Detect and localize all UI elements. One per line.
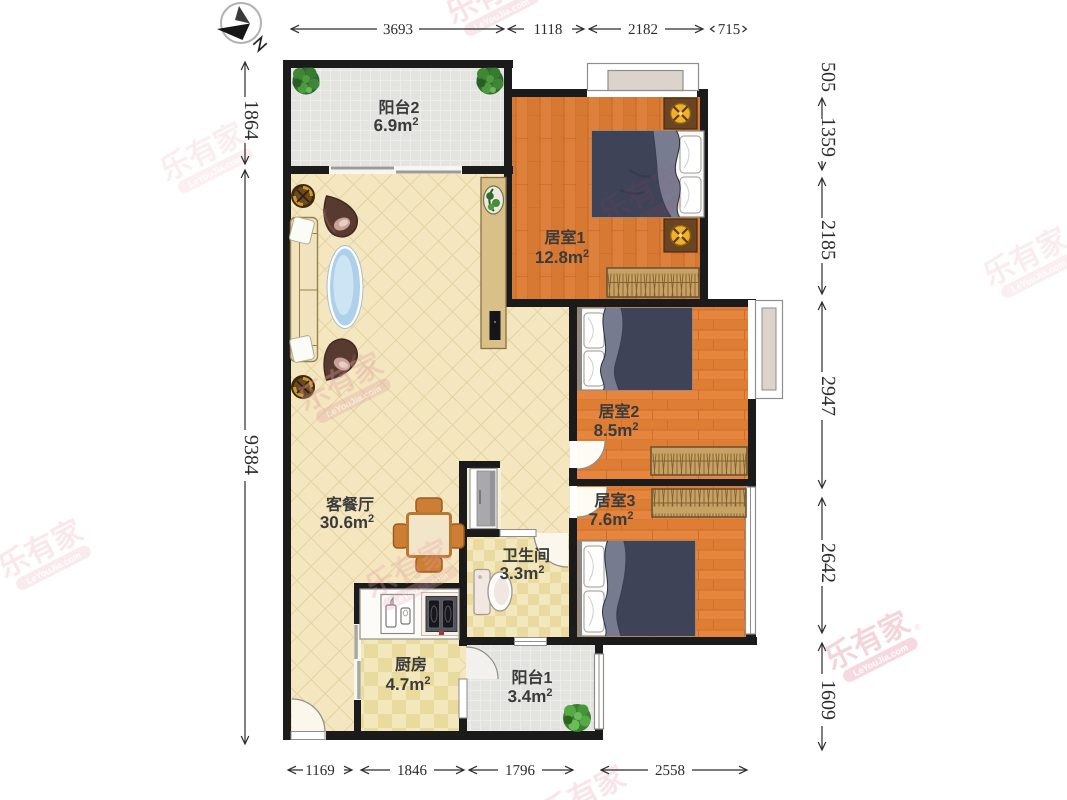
svg-text:4.7m2: 4.7m2 bbox=[386, 675, 431, 694]
svg-text:6.9m2: 6.9m2 bbox=[374, 116, 419, 135]
svg-text:2558: 2558 bbox=[655, 763, 685, 779]
svg-text:1846: 1846 bbox=[397, 763, 428, 779]
svg-text:1118: 1118 bbox=[534, 22, 563, 38]
svg-text:715: 715 bbox=[718, 22, 741, 38]
svg-text:2185: 2185 bbox=[817, 220, 839, 260]
svg-text:居室1: 居室1 bbox=[545, 229, 586, 247]
svg-text:3.4m2: 3.4m2 bbox=[508, 687, 553, 706]
svg-text:阳台2: 阳台2 bbox=[379, 99, 420, 117]
svg-text:2182: 2182 bbox=[628, 22, 658, 38]
svg-text:1169: 1169 bbox=[305, 763, 334, 779]
svg-text:30.6m2: 30.6m2 bbox=[320, 513, 374, 532]
svg-text:卫生间: 卫生间 bbox=[502, 547, 550, 565]
svg-text:1796: 1796 bbox=[505, 763, 536, 779]
svg-text:阳台1: 阳台1 bbox=[512, 669, 553, 687]
svg-text:2947: 2947 bbox=[817, 376, 839, 416]
svg-text:厨房: 厨房 bbox=[395, 656, 427, 674]
svg-text:3.3m2: 3.3m2 bbox=[500, 564, 545, 583]
svg-text:居室2: 居室2 bbox=[599, 403, 640, 421]
svg-text:3693: 3693 bbox=[383, 22, 413, 38]
svg-text:505: 505 bbox=[817, 62, 839, 92]
svg-text:1359: 1359 bbox=[817, 117, 839, 157]
svg-text:客餐厅: 客餐厅 bbox=[325, 496, 374, 514]
svg-text:1609: 1609 bbox=[817, 680, 839, 720]
svg-text:居室3: 居室3 bbox=[595, 492, 636, 510]
svg-text:8.5m2: 8.5m2 bbox=[594, 421, 639, 440]
svg-text:7.6m2: 7.6m2 bbox=[589, 510, 634, 529]
svg-text:2642: 2642 bbox=[817, 543, 839, 583]
svg-text:1864: 1864 bbox=[240, 100, 262, 140]
svg-text:12.8m2: 12.8m2 bbox=[535, 248, 589, 267]
svg-text:9384: 9384 bbox=[240, 435, 262, 475]
